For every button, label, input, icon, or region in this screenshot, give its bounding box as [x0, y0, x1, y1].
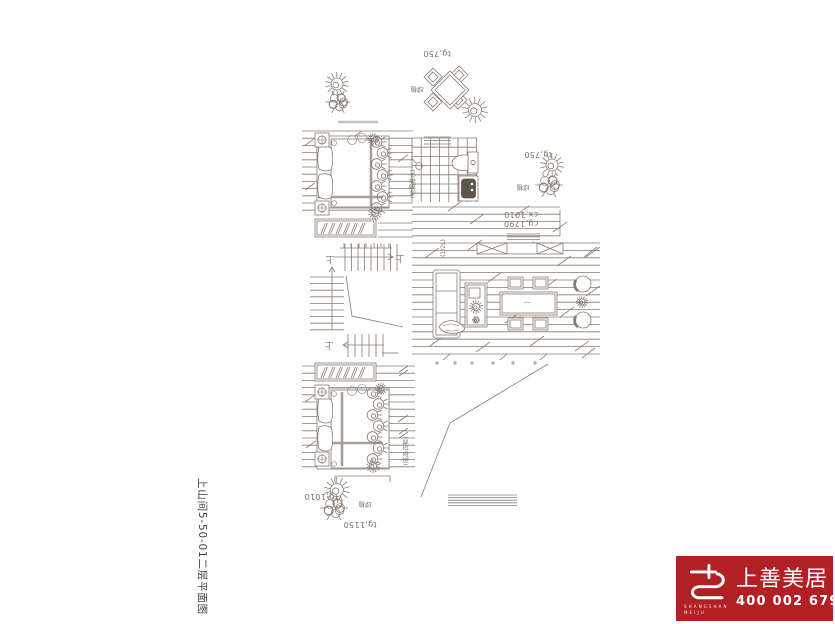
- label-roof-sill-height: tg,750: [423, 49, 451, 57]
- bedroom-bottom: [315, 363, 389, 473]
- label-stair-up-right: 上: [395, 253, 404, 262]
- bedroom-top-floor-hatch2: [378, 223, 413, 237]
- pillow: [318, 426, 333, 451]
- radiator: [315, 219, 376, 237]
- pillow: [318, 174, 333, 199]
- brand-name-en-line2: MEIJU: [684, 610, 706, 616]
- dining-table: [500, 292, 557, 315]
- label-wardrobe-note: (成品衣柜): [404, 437, 410, 466]
- label-roof-plant-tag: 绿植: [411, 86, 424, 93]
- brand-name-cn: 上善美居: [736, 568, 835, 592]
- roof-dining-set: [424, 66, 488, 123]
- sideboard: [465, 283, 487, 327]
- stair-left-flight-treads: [310, 277, 344, 330]
- bedroom-top: [315, 133, 393, 237]
- label-stair-up-bottom: 上: [324, 340, 333, 349]
- brand-logo: SHANGSHAN MEIJU 上善美居 400 002 6791: [676, 556, 833, 621]
- stair-bottom-flight-treads: [348, 334, 383, 357]
- brand-logo-icon: [684, 562, 732, 604]
- bottom-grille-lines: [448, 495, 517, 505]
- brand-phone: 400 002 6791: [736, 594, 835, 609]
- label-lower-sill-a: tg,1010: [304, 492, 337, 500]
- pillow: [318, 398, 333, 423]
- floor-plan: [0, 0, 835, 624]
- page: { "title": { "text": "上山间5-50-01二层平面图" }…: [0, 0, 835, 624]
- toilet-tank: [468, 152, 478, 173]
- plant-top-left: [325, 72, 350, 113]
- label-bath-note: (地漏排水): [411, 170, 417, 199]
- label-window-width: cx,1010: [504, 210, 538, 218]
- label-stair-up-left: 上: [325, 254, 334, 263]
- radiator: [315, 363, 376, 381]
- label-lower-sill-b: tg,1150: [343, 520, 376, 528]
- plant-terrace-right: [535, 153, 564, 197]
- toilet-bowl: [452, 155, 468, 171]
- label-terrace-plant-tag: 绿植: [517, 184, 530, 191]
- label-lower-plant-tag: 绿植: [359, 501, 372, 508]
- dining-window-band: [507, 234, 540, 240]
- label-terrace-sill-height: tg,750: [524, 150, 552, 158]
- drawing-title: 上山间5-50-01二层平面图: [195, 478, 210, 615]
- pillow: [318, 146, 333, 171]
- label-window-height: cg,1790: [504, 219, 538, 227]
- label-mirror-note: (1/2L): [441, 239, 447, 257]
